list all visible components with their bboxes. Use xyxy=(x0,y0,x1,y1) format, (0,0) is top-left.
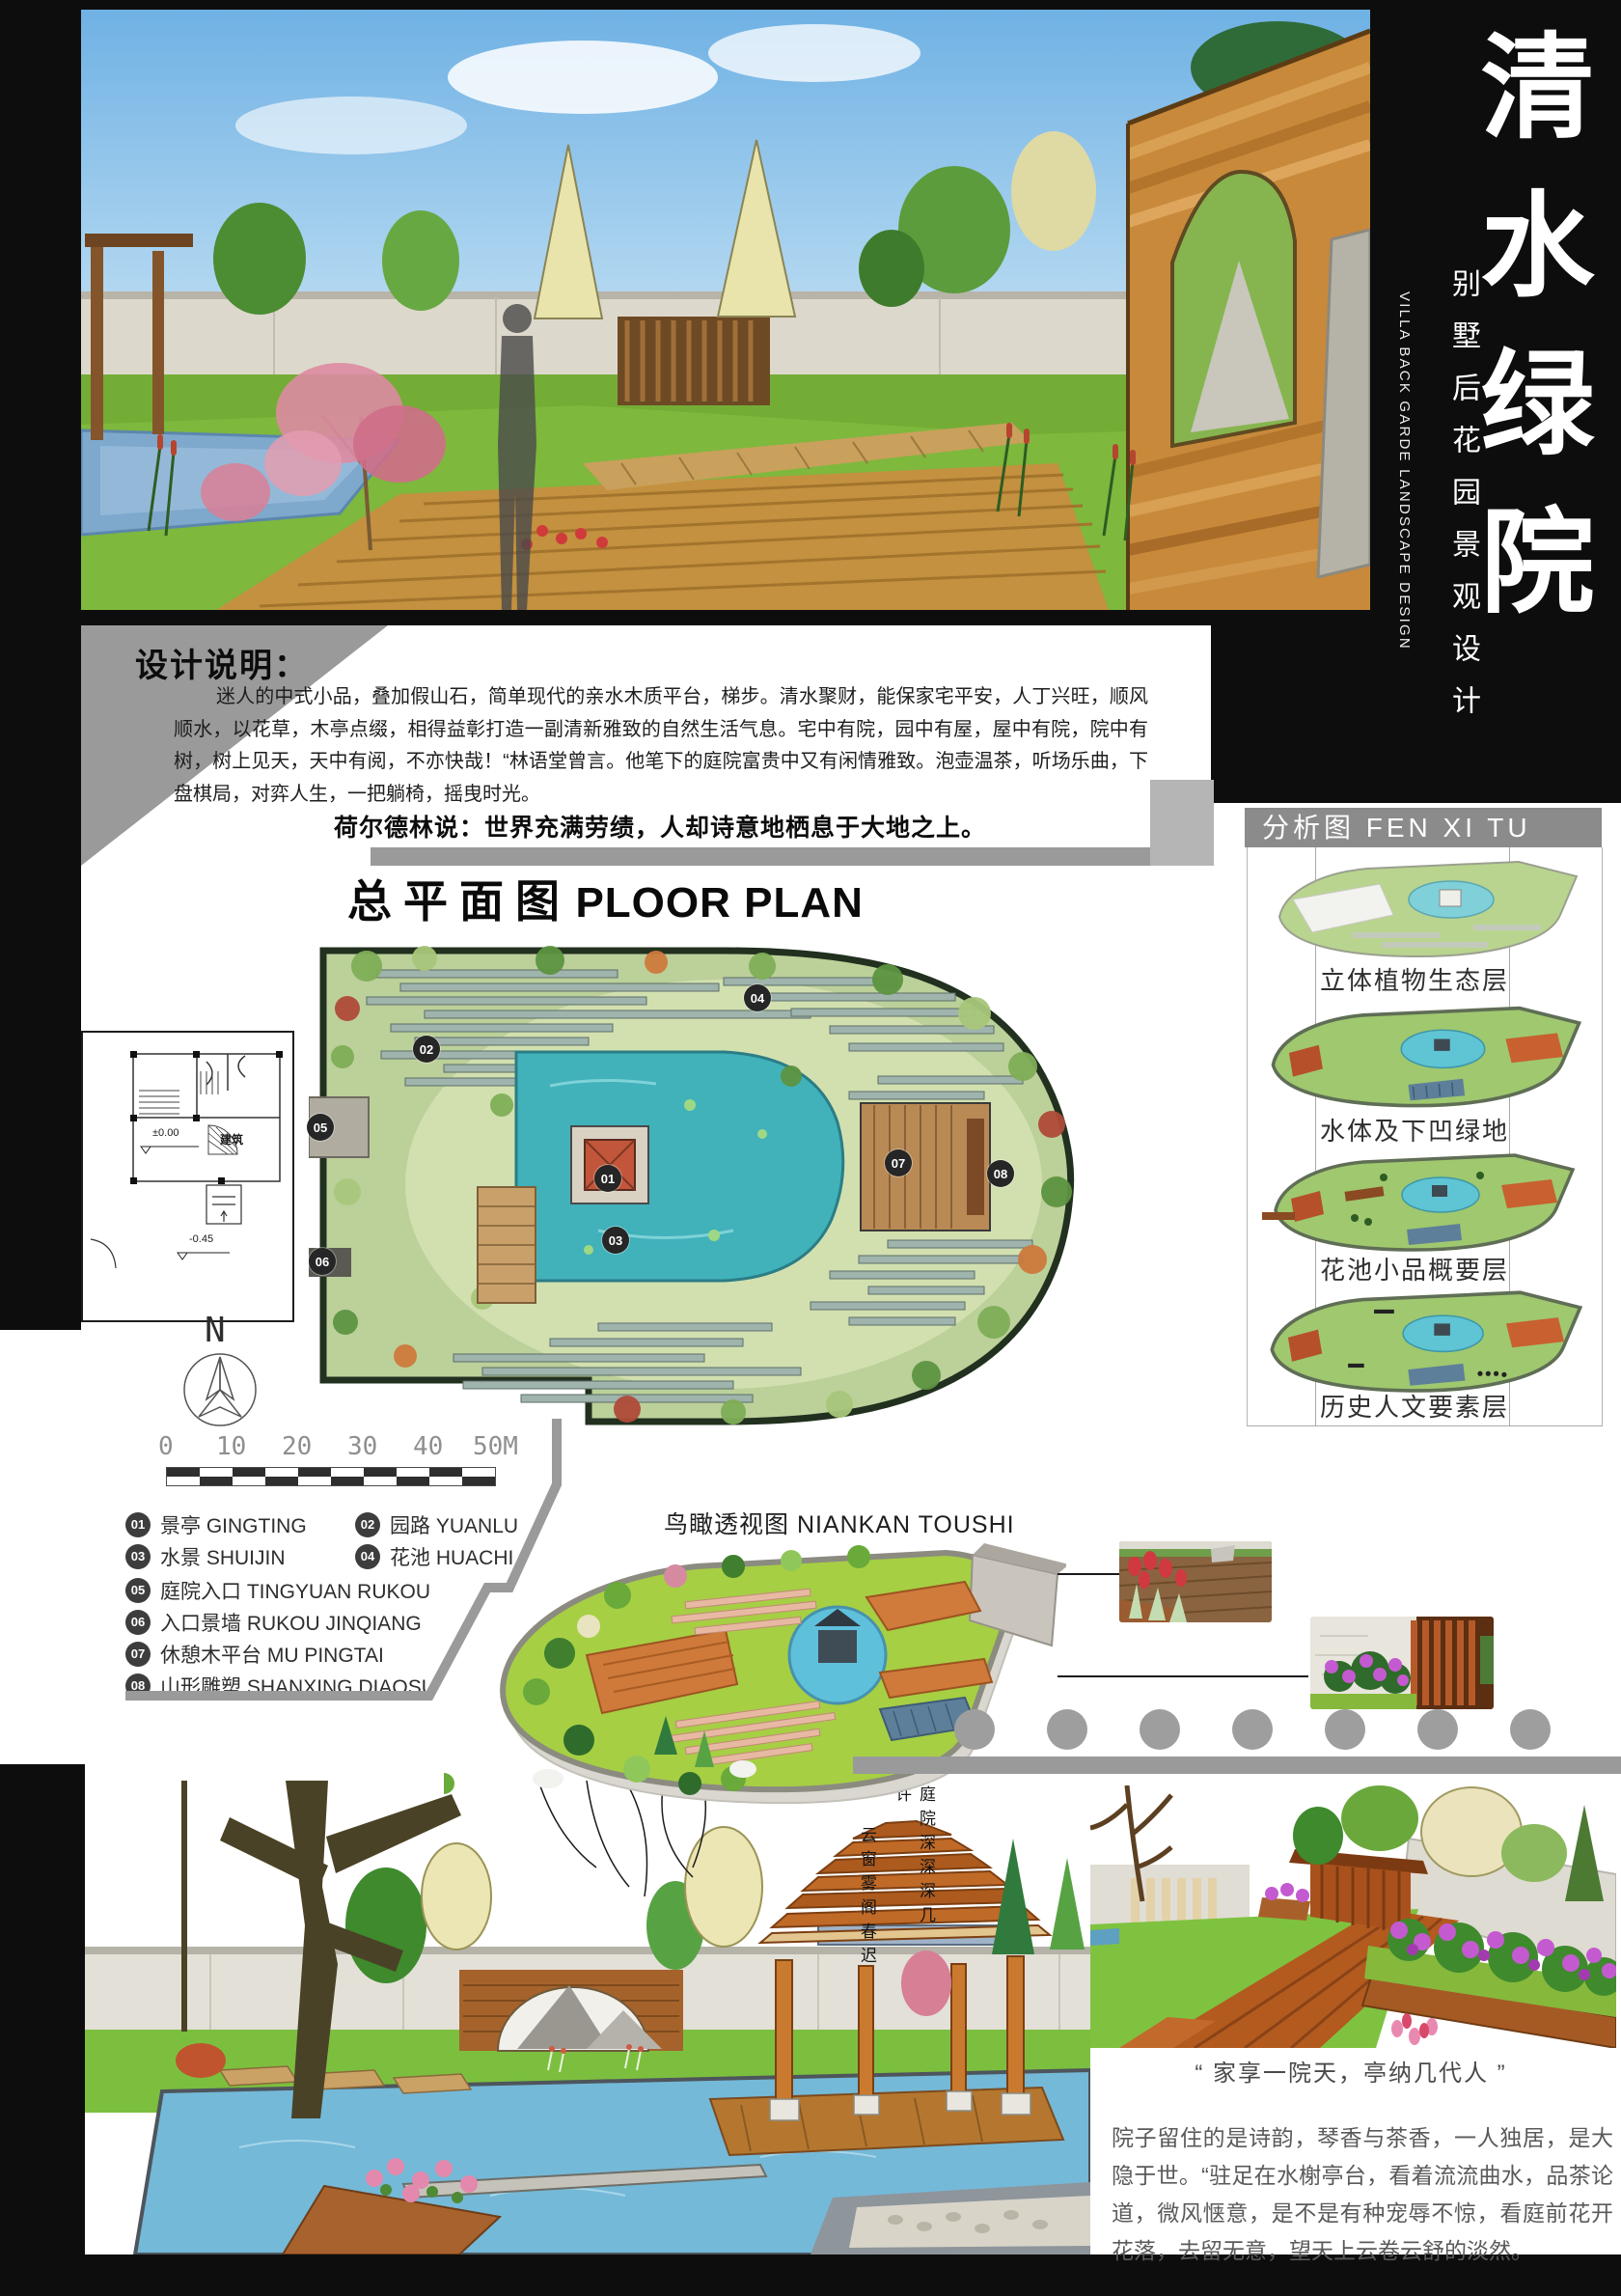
plan-marker-01: 01 xyxy=(594,1165,621,1192)
floor-plan-title-zh: 总平面图 xyxy=(347,876,571,927)
holderlin-quote: 荷尔德林说：世界充满劳绩，人却诗意地栖息于大地之上。 xyxy=(255,809,1065,844)
analysis-label-3: 花池小品概要层 xyxy=(1264,1251,1565,1286)
poster-subtitle-vertical: 别墅后花园景观设计 xyxy=(1442,268,1484,789)
divider-dot-2 xyxy=(1047,1709,1087,1750)
gray-tab-decoration xyxy=(1150,780,1214,866)
closing-body: 院子留住的是诗韵，琴香与茶香，一人独居，是大隐于世。“驻足在水榭亭台，看着流流曲… xyxy=(1112,2119,1613,2270)
divider-bar xyxy=(853,1757,1621,1774)
floor-plan-title: 总平面图 PLOOR PLAN xyxy=(347,867,864,930)
plan-marker-07: 07 xyxy=(885,1149,912,1176)
poster-title-vertical: 清水绿院 xyxy=(1470,27,1584,799)
divider-dot-4 xyxy=(1232,1709,1273,1750)
left-black-strip-top xyxy=(0,625,81,1330)
main-perspective-render xyxy=(81,10,1370,610)
divider-dot-7 xyxy=(1510,1709,1551,1750)
cad-label-building: 建筑 xyxy=(220,1131,243,1148)
plan-marker-06: 06 xyxy=(309,1248,336,1275)
left-black-strip-bottom xyxy=(0,1764,85,2296)
analysis-header: 分析图 FEN XI TU xyxy=(1245,808,1602,847)
analysis-diagram-planters xyxy=(1252,1148,1596,1253)
master-plan: 01 02 03 04 05 06 07 08 xyxy=(309,941,1095,1457)
plan-marker-04: 04 xyxy=(744,984,771,1011)
pavilion-render xyxy=(85,1781,1090,2255)
detail-photo-fence xyxy=(1310,1617,1494,1709)
floor-plan-title-en: PLOOR PLAN xyxy=(575,879,863,927)
plan-marker-03: 03 xyxy=(602,1227,629,1254)
analysis-label-4: 历史人文要素层 xyxy=(1264,1388,1565,1424)
walkway-render-illustration xyxy=(1090,1785,1616,2048)
connector-line-2 xyxy=(1058,1675,1308,1677)
master-plan-drawing xyxy=(309,941,1095,1457)
main-render-illustration xyxy=(81,10,1370,610)
walkway-render xyxy=(1090,1785,1616,2048)
divider-dot-6 xyxy=(1417,1709,1458,1750)
connector-line-1 xyxy=(1058,1573,1119,1575)
mid-black-band xyxy=(1211,625,1386,803)
cad-plan-inset: 建筑 ±0.00 -0.45 xyxy=(81,1031,294,1322)
divider-dot-1 xyxy=(954,1709,995,1750)
closing-quote: “ 家享一院天，亭纳几代人 ” xyxy=(1100,2054,1602,2088)
poster-subtitle-en-vertical: VILLA BACK GARDE LANDSCAPE DESIGN xyxy=(1396,291,1413,650)
analysis-diagram-ecology xyxy=(1266,855,1590,959)
birdseye-caption: 鸟瞰透视图 NIANKAN TOUSHI xyxy=(664,1506,1015,1540)
design-notes-heading: 设计说明： xyxy=(135,639,309,686)
north-label: N xyxy=(205,1311,226,1350)
analysis-label-2: 水体及下凹绿地 xyxy=(1264,1112,1565,1148)
cad-plan-drawing xyxy=(83,1033,292,1320)
divider-dot-3 xyxy=(1140,1709,1180,1750)
analysis-diagram-water xyxy=(1259,1000,1593,1110)
plan-marker-02: 02 xyxy=(413,1036,440,1063)
notes-bottom-bar xyxy=(371,847,1211,866)
poster-board: 清水绿院 别墅后花园景观设计 VILLA BACK GARDE LANDSCAP… xyxy=(0,0,1621,2296)
cad-level-zero: ±0.00 xyxy=(152,1127,179,1139)
pavilion-render-illustration xyxy=(85,1781,1090,2255)
detail-photo-tulips xyxy=(1119,1541,1272,1622)
plan-marker-08: 08 xyxy=(987,1160,1014,1187)
plan-marker-05: 05 xyxy=(307,1114,334,1141)
wall-poem-line-2: 云窗雾阁春迟 xyxy=(855,1826,879,1971)
analysis-diagram-culture xyxy=(1252,1286,1600,1394)
design-notes-body: 迷人的中式小品，叠加假山石，简单现代的亲水木质平台，梯步。清水聚财，能保家宅平安… xyxy=(174,681,1148,811)
cad-level-minus: -0.45 xyxy=(189,1233,213,1245)
analysis-label-1: 立体植物生态层 xyxy=(1264,961,1565,997)
divider-dot-5 xyxy=(1325,1709,1365,1750)
